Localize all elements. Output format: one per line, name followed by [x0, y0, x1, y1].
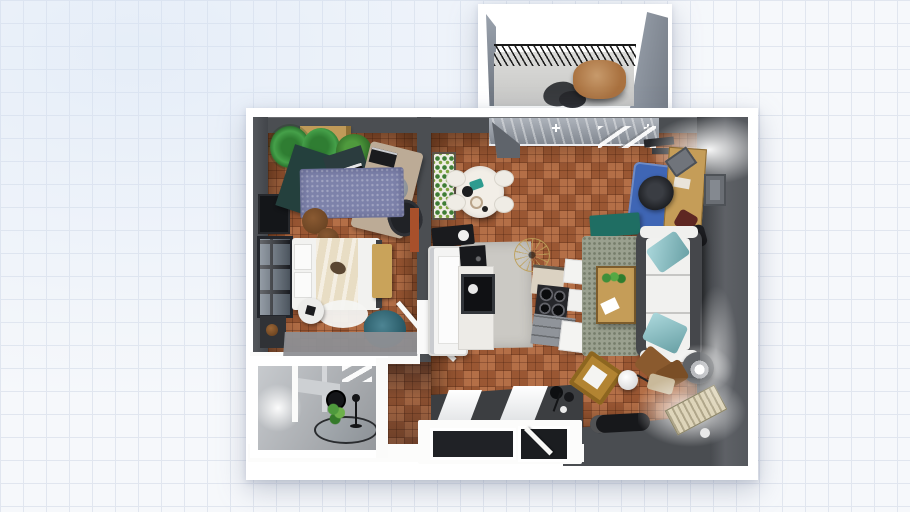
bathroom-ceiling-light	[342, 362, 372, 382]
dining-chair-3[interactable]	[494, 170, 514, 187]
microwave-plate	[468, 284, 478, 294]
pan-black	[462, 186, 473, 197]
cake-plate	[470, 196, 483, 209]
dining-chair-2[interactable]	[446, 194, 466, 211]
gray-runner-rug[interactable]	[283, 332, 419, 356]
foot-bench-tan[interactable]	[372, 244, 392, 298]
teal-console[interactable]	[589, 212, 640, 237]
floor-plan-canvas	[0, 0, 910, 512]
bathroom-hall-wall	[376, 358, 388, 458]
dining-chair-4[interactable]	[494, 196, 514, 213]
microwave[interactable]	[461, 274, 495, 314]
bathroom-partition-1	[292, 366, 298, 422]
entry-white-dot	[560, 406, 567, 413]
bed-pillow-1	[294, 244, 312, 270]
small-sphere	[700, 428, 710, 438]
bottom-window-opening[interactable]	[430, 428, 516, 460]
dining-chair-1[interactable]	[446, 170, 466, 187]
bedroom-window[interactable]	[257, 236, 293, 318]
balcony-door-handle-1	[552, 124, 560, 132]
wall-frame[interactable]	[704, 174, 726, 206]
table-plant	[600, 272, 626, 284]
bathroom-round-rug[interactable]	[314, 416, 378, 444]
bathroom-coat-rack-pole[interactable]	[355, 398, 357, 426]
coat-stand-ball-2[interactable]	[564, 392, 574, 402]
bowl-small	[482, 206, 488, 212]
ball-lamp[interactable]	[618, 370, 638, 390]
bathroom-coat-rack-base	[350, 424, 362, 428]
right-wall-glow	[700, 280, 740, 420]
balcony-table[interactable]	[573, 60, 626, 99]
sink-bowl	[458, 230, 469, 241]
bathroom-plant[interactable]	[327, 402, 345, 426]
fridge-panel	[438, 256, 460, 344]
wall-shelf-orange[interactable]	[410, 208, 419, 252]
white-round-rug[interactable]	[318, 300, 368, 328]
bathroom-coat-rack-top	[352, 394, 360, 402]
dresser-basket	[266, 324, 278, 336]
bed-pillow-2	[294, 272, 312, 298]
